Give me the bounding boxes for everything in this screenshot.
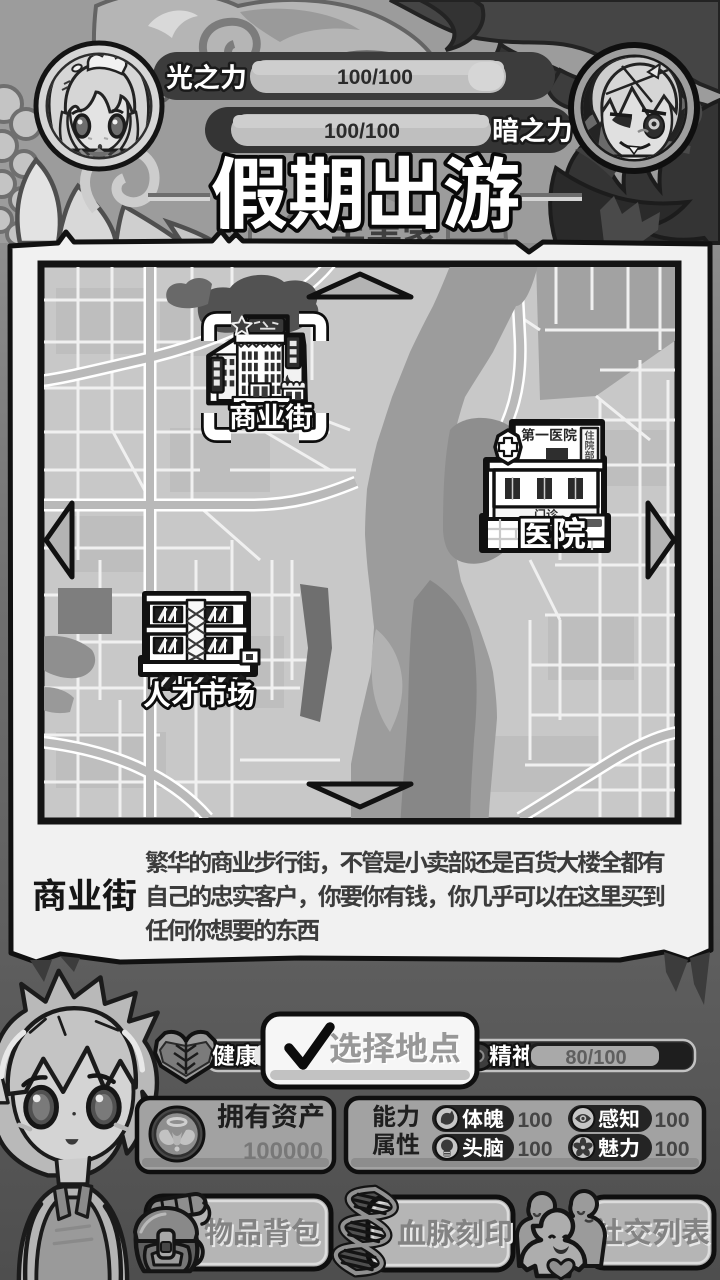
- svg-text:100: 100: [517, 1109, 552, 1132]
- svg-text:100/100: 100/100: [337, 66, 413, 89]
- svg-text:100: 100: [654, 1138, 689, 1161]
- svg-text:80/100: 80/100: [565, 1047, 626, 1069]
- svg-text:100/100: 100/100: [324, 120, 400, 143]
- svg-text:100: 100: [517, 1138, 552, 1161]
- svg-text:100000: 100000: [243, 1138, 323, 1165]
- svg-text:100: 100: [654, 1109, 689, 1132]
